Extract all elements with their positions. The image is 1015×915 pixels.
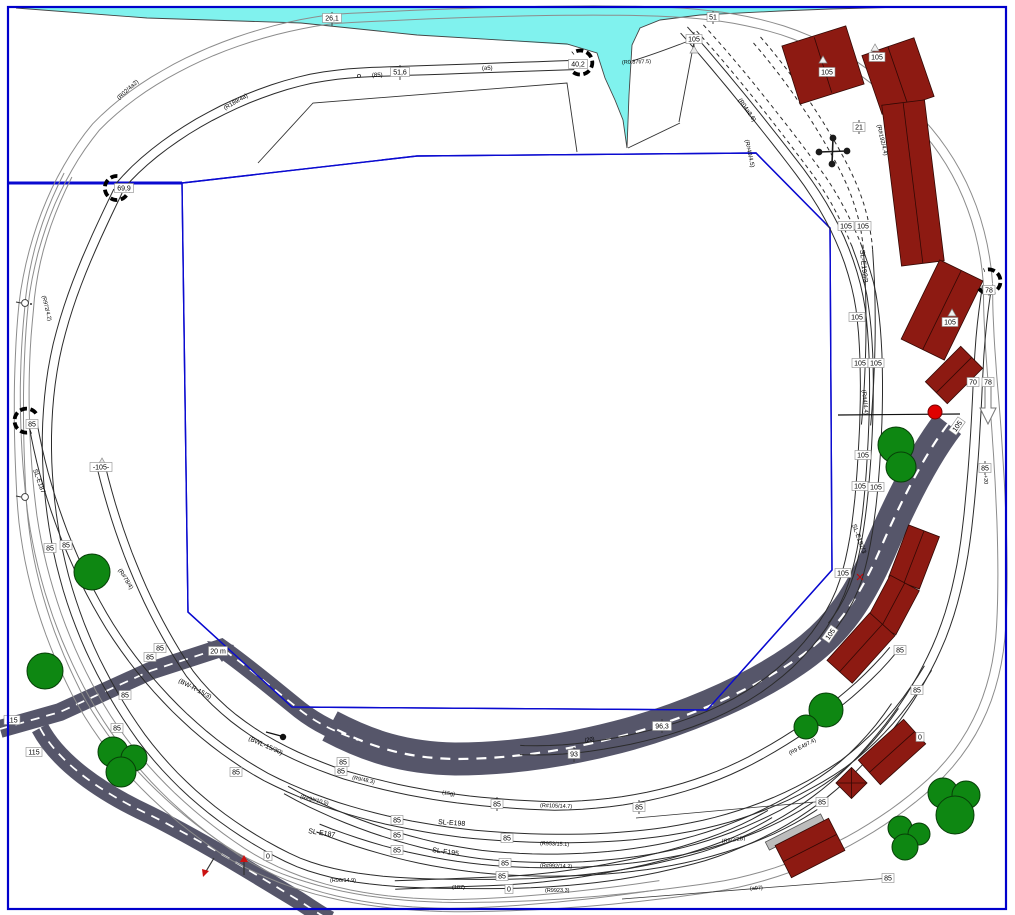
svg-text:85: 85 <box>913 688 921 695</box>
svg-text:105: 105 <box>837 571 849 578</box>
svg-text:78: 78 <box>984 380 992 387</box>
svg-text:(R0.87t/7.5): (R0.87t/7.5) <box>622 59 651 66</box>
svg-text:105: 105 <box>688 37 700 44</box>
svg-text:(a97): (a97) <box>750 885 763 892</box>
svg-text:(a5): (a5) <box>482 66 493 72</box>
svg-text:115: 115 <box>28 750 39 757</box>
svg-text:85: 85 <box>121 693 129 700</box>
svg-text:85: 85 <box>146 655 154 662</box>
svg-text:51: 51 <box>709 15 717 22</box>
svg-text:(R9923.3): (R9923.3) <box>545 888 570 894</box>
svg-text:(R953/15.1): (R953/15.1) <box>540 841 569 848</box>
svg-text:105: 105 <box>870 485 882 492</box>
svg-text:105: 105 <box>851 315 863 322</box>
svg-text:85: 85 <box>46 546 54 553</box>
svg-text:69,9: 69,9 <box>117 186 131 193</box>
svg-text:85: 85 <box>156 646 164 653</box>
svg-text:93: 93 <box>570 752 578 759</box>
svg-text:96,3: 96,3 <box>655 724 669 731</box>
svg-text:85: 85 <box>503 836 511 843</box>
svg-text:0: 0 <box>918 735 922 742</box>
svg-text:85: 85 <box>635 805 643 812</box>
svg-text:105: 105 <box>857 453 869 460</box>
svg-text:85: 85 <box>393 848 401 855</box>
svg-text:105: 105 <box>854 484 866 491</box>
svg-text:(R#992/14.2): (R#992/14.2) <box>540 863 572 870</box>
svg-text:85: 85 <box>884 876 892 883</box>
svg-text:78: 78 <box>985 288 993 295</box>
svg-text:0: 0 <box>507 887 511 894</box>
svg-text:85: 85 <box>232 770 240 777</box>
svg-text:70: 70 <box>969 380 977 387</box>
svg-text:85: 85 <box>113 726 121 733</box>
svg-text:85: 85 <box>981 466 989 473</box>
svg-text:85: 85 <box>493 802 501 809</box>
svg-text:105: 105 <box>840 224 852 231</box>
svg-text:(85): (85) <box>372 73 383 79</box>
svg-text:0: 0 <box>266 854 270 861</box>
svg-text:+20: +20 <box>982 475 988 485</box>
svg-text:85: 85 <box>339 760 347 767</box>
svg-text:85: 85 <box>337 769 345 776</box>
svg-text:85: 85 <box>28 422 36 429</box>
svg-text:26,1: 26,1 <box>325 16 339 23</box>
svg-text:85: 85 <box>818 800 826 807</box>
svg-text:85: 85 <box>498 874 506 881</box>
svg-text:(187): (187) <box>452 885 465 891</box>
svg-text:20 m: 20 m <box>210 649 226 656</box>
svg-text:85: 85 <box>501 861 509 868</box>
svg-text:105: 105 <box>944 320 956 327</box>
svg-text:40,2: 40,2 <box>571 62 585 69</box>
svg-text:105: 105 <box>854 361 866 368</box>
svg-text:85: 85 <box>393 818 401 825</box>
svg-text:105: 105 <box>870 361 882 368</box>
svg-text:85: 85 <box>896 648 904 655</box>
svg-text:51,6: 51,6 <box>393 70 407 77</box>
svg-text:85: 85 <box>62 543 70 550</box>
svg-text:105: 105 <box>821 70 833 77</box>
svg-text:21: 21 <box>855 125 863 132</box>
svg-text:105: 105 <box>857 224 869 231</box>
svg-text:-105-: -105- <box>93 465 110 472</box>
svg-text:85: 85 <box>393 833 401 840</box>
svg-text:(R96/14.9): (R96/14.9) <box>330 878 356 884</box>
svg-text:(R#105/14.7): (R#105/14.7) <box>540 803 572 810</box>
svg-text:105: 105 <box>871 55 883 62</box>
